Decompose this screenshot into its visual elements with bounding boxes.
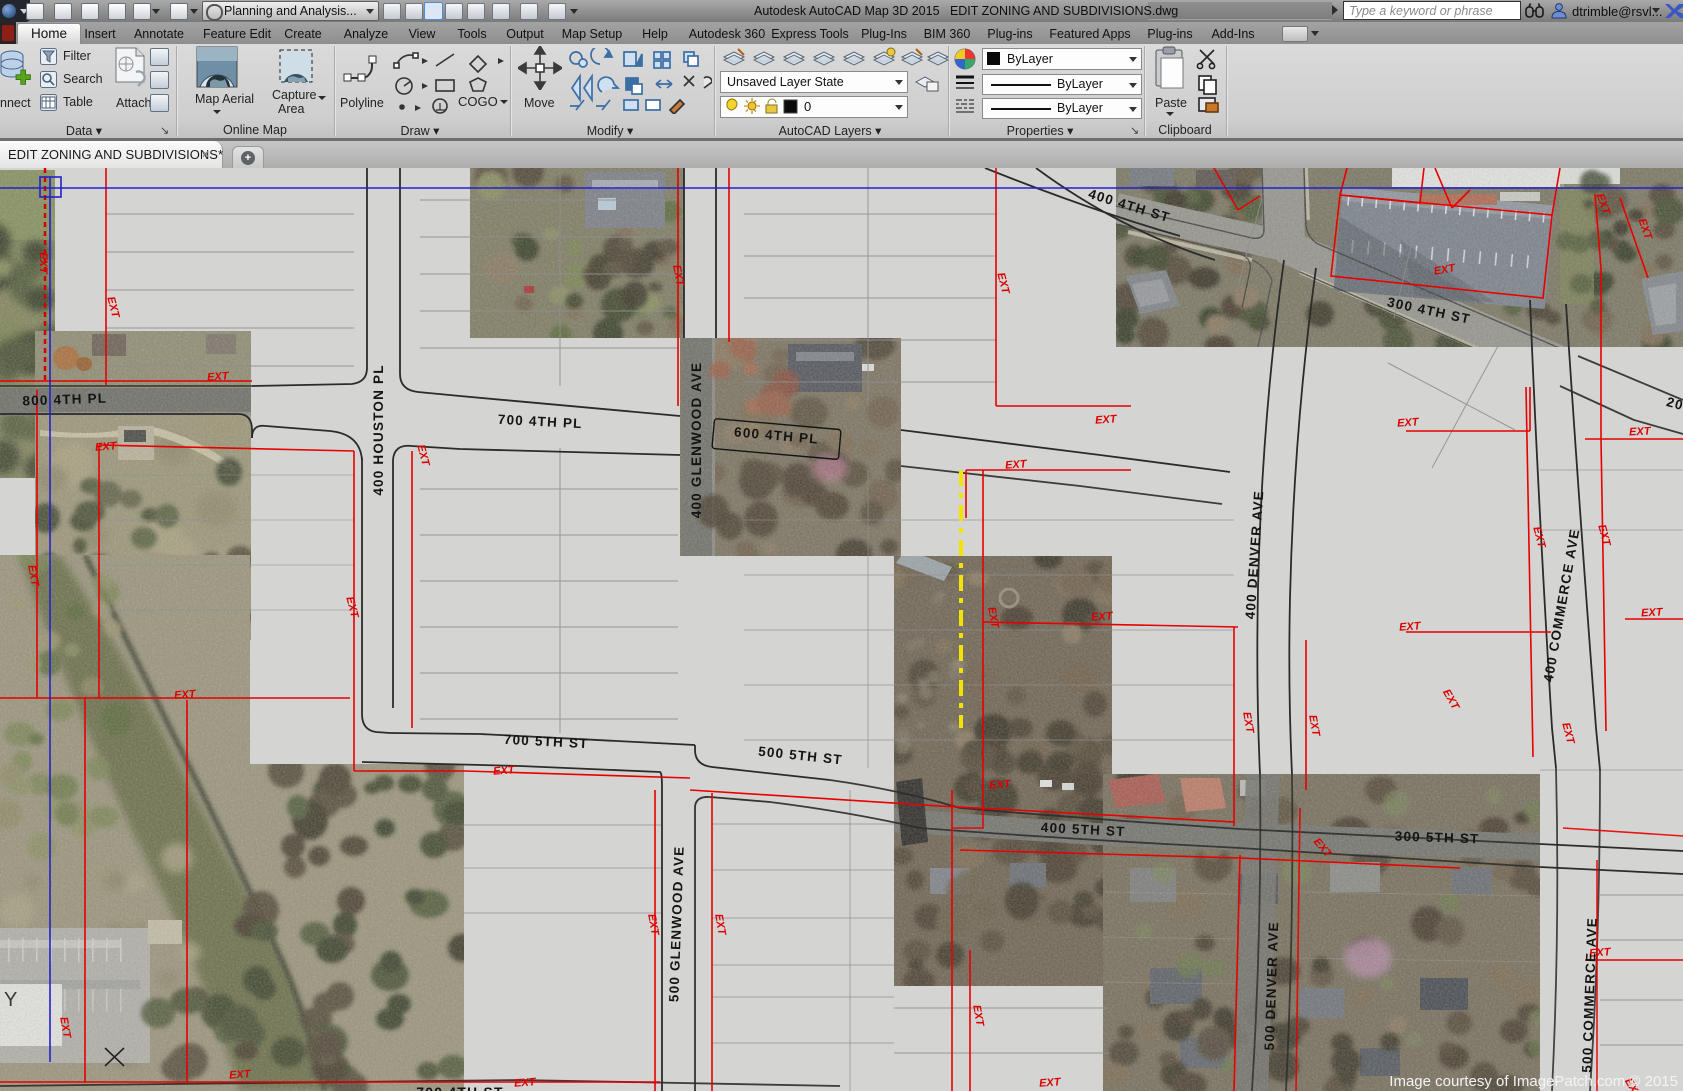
svg-text:EXT: EXT: [1641, 606, 1664, 619]
svg-text:800 4TH PL: 800 4TH PL: [22, 391, 107, 409]
svg-text:0: 0: [804, 99, 811, 114]
svg-text:EXT: EXT: [1091, 610, 1114, 624]
svg-text:EXT: EXT: [229, 1068, 252, 1082]
svg-text:EXT: EXT: [174, 688, 197, 702]
svg-text:EXT: EXT: [493, 764, 516, 778]
svg-text:Image courtesy of ImagePatch.c: Image courtesy of ImagePatch.com © 2015: [1389, 1073, 1678, 1090]
svg-text:EXT: EXT: [1005, 458, 1028, 472]
svg-text:EXT: EXT: [37, 252, 49, 275]
svg-text:400 GLENWOOD AVE: 400 GLENWOOD AVE: [689, 362, 704, 518]
svg-text:EXT: EXT: [514, 1076, 537, 1090]
svg-text:EXT: EXT: [989, 778, 1012, 792]
svg-text:EXT: EXT: [1039, 1076, 1062, 1090]
svg-text:EXT: EXT: [1629, 425, 1652, 438]
svg-text:300 5TH ST: 300 5TH ST: [1395, 829, 1480, 847]
svg-text:EXT: EXT: [1095, 413, 1118, 427]
svg-text:EXT: EXT: [95, 440, 118, 454]
svg-text:EXT: EXT: [1399, 620, 1422, 634]
svg-text:700 4TH ST: 700 4TH ST: [416, 1084, 503, 1091]
svg-text:400 HOUSTON PL: 400 HOUSTON PL: [371, 364, 386, 495]
svg-text:EXT: EXT: [1397, 416, 1420, 430]
svg-text:EXT: EXT: [207, 370, 230, 384]
svg-text:Y: Y: [4, 989, 17, 1011]
